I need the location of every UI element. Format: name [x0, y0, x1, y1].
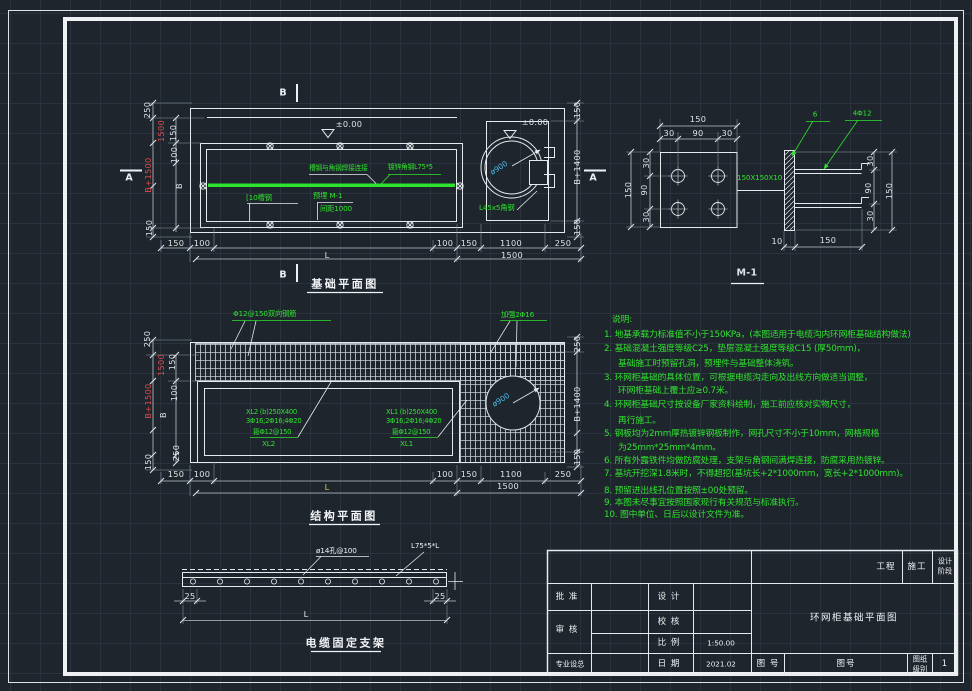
dim-250: 250: [172, 445, 180, 462]
note-line: 基础施工时预留孔洞，预埋件与基础整体浇筑。: [618, 360, 799, 369]
tb-stage-line1: 设计: [938, 557, 952, 564]
bracket-angle-label: L75*5*L: [411, 542, 439, 549]
note-line: 1. 地基承载力标准值不小于150KPa，(本图适用于电缆沟内环网柜基础结构做法…: [604, 331, 911, 340]
dim-1100: 1100: [500, 239, 522, 247]
section-mark-a-left: A: [125, 173, 132, 183]
cable-bracket-title: 电缆固定支架: [306, 638, 387, 649]
dim-100: 100: [437, 470, 454, 478]
tb-drawing-title: 环网柜基础平面图: [810, 613, 898, 623]
tb-review-label: 审 核: [556, 626, 579, 635]
dim-25: 25: [434, 592, 445, 600]
dim-100: 100: [194, 239, 211, 247]
angle-steel-label: 镀锌角钢L75*5: [388, 164, 433, 171]
anchor-bars-label: 4Φ12: [853, 109, 872, 116]
dim-b1500-red: B+1500: [144, 157, 152, 192]
tb-design-label: 设 计: [658, 593, 681, 602]
section-mark-b-top: B: [279, 88, 286, 98]
xl1-line2: 3Φ16;2Φ16;4Φ20: [386, 418, 441, 425]
note-line: 2. 基础混凝土强度等级C25，垫层混凝土强度等级C15 (厚50mm)，: [604, 345, 865, 354]
dim-b: B: [175, 183, 183, 189]
tb-stage-line2: 阶段: [938, 567, 952, 574]
xl2-line3: 箍Φ12@150: [253, 429, 291, 436]
reinforce-label: 加强2Φ16: [501, 311, 534, 318]
dim-150: 150: [573, 449, 581, 466]
dim-30: 30: [721, 129, 732, 137]
note-line: 10. 图中单位、日后以设计文件为准。: [604, 511, 749, 520]
section-mark-a-right: A: [589, 173, 596, 183]
tb-scale-label: 比 例: [658, 639, 681, 648]
dim-25: 25: [184, 592, 195, 600]
note-line: 9. 本图未尽事宜按照国家现行有关规范与标准执行。: [604, 499, 804, 508]
tb-dwgno-label: 图 号: [757, 660, 780, 669]
dim-100: 100: [437, 239, 454, 247]
dim-150: 150: [573, 219, 581, 236]
dim-1500-red: 1500: [157, 354, 165, 376]
galvanized-angle-bar: [208, 184, 455, 188]
dim-250: 250: [555, 470, 572, 478]
bracket-holes-label: ø14孔@100: [316, 547, 357, 554]
note-line: 4. 环网柜基础尺寸按设备厂家资料绘制，施工前应核对实物尺寸，: [604, 401, 855, 410]
dim-l-yellow: L: [325, 483, 330, 491]
dim-90: 90: [692, 129, 703, 137]
tb-check-label: 校 核: [658, 618, 681, 627]
dim-l: L: [325, 251, 330, 259]
dim-150: 150: [690, 115, 707, 123]
dim-1500: 1500: [501, 251, 523, 259]
tb-sheet-number: 1: [942, 660, 948, 669]
dim-150: 150: [885, 183, 893, 200]
dim-250: 250: [555, 239, 572, 247]
note-line: 为25mm*25mm*4mm。: [618, 444, 721, 453]
dim-30: 30: [866, 210, 874, 221]
tb-scale-value: 1:50.00: [707, 639, 735, 646]
dim-100: 100: [194, 470, 211, 478]
dim-150: 150: [169, 125, 177, 142]
mesh-rebar-label: Φ12@150双向钢筋: [233, 310, 296, 317]
dim-150: 150: [461, 239, 478, 247]
note-line: 5. 钢板均为2mm厚热镀锌钢板制作，网孔尺寸不小于10mm，网格规格: [604, 430, 879, 439]
dim-b1500-red: B+1500: [144, 383, 152, 418]
tb-construction-label: 施工: [907, 563, 926, 572]
note-line: 环网柜基础上覆土应≥0.7米。: [618, 387, 733, 396]
section-mark-b-bottom: B: [279, 270, 286, 280]
cable-bracket-lines: [182, 570, 463, 591]
note-line: 7. 基坑开挖深1.8米时，不得超挖(基坑长+2*1000mm，宽长+2*100…: [604, 470, 908, 479]
tb-sheetclass-line2: 级别: [913, 665, 927, 672]
level-mark: ±0.00: [336, 120, 363, 128]
notes-heading: 说明:: [612, 316, 632, 325]
xl1-line1: XL1 (b)250X400: [386, 409, 437, 416]
note-line: 再行施工。: [618, 417, 661, 426]
dim-150: 150: [168, 354, 176, 371]
tb-dwgno-value: 图号: [836, 660, 855, 669]
dim-30: 30: [642, 157, 650, 168]
xl1-name: XL1: [400, 440, 413, 447]
foundation-plan-lines: [191, 109, 565, 233]
embed-label: 预埋 M-1: [313, 192, 342, 199]
dim-1500: 1500: [497, 482, 519, 490]
weld-note-label: 槽钢与角钢焊接连接: [309, 165, 367, 172]
dim-100: 100: [170, 385, 178, 402]
cad-drawing-canvas[interactable]: B B A A ±0.00 ±0.00 槽钢与角钢焊接连接 镀锌角钢L75*5 …: [0, 0, 972, 691]
dim-b1400: B+1400: [573, 386, 581, 421]
m1-detail-title: M-1: [737, 268, 758, 278]
xl2-line2: 3Φ16;2Φ16;4Φ20: [246, 418, 301, 425]
dim-100: 100: [170, 147, 178, 164]
note-line: 8. 预留进出线孔位置按照±00处预留。: [604, 487, 753, 496]
dim-150: 150: [820, 236, 837, 244]
dim-1500-red: 1500: [157, 120, 165, 142]
dim-150: 150: [144, 454, 152, 471]
dim-250: 250: [573, 336, 581, 353]
dim-150: 150: [168, 239, 185, 247]
tb-project-label: 工程: [876, 563, 895, 572]
dim-30: 30: [663, 129, 674, 137]
dim-150: 150: [145, 220, 153, 237]
xl1-line3: 箍Φ12@150: [392, 429, 430, 436]
channel-steel-label: [10槽钢: [246, 194, 272, 201]
tb-date-label: 日 期: [658, 660, 681, 669]
dim-250: 250: [143, 331, 151, 348]
dim-30: 30: [866, 155, 874, 166]
m1-detail-lines: [661, 151, 870, 231]
embed-spacing-label: 间距1000: [320, 205, 352, 212]
dim-90: 90: [864, 182, 872, 193]
dim-30: 30: [642, 211, 650, 222]
plate-size-label: 150X150X10: [737, 174, 782, 181]
tb-discipline-label: 专业设总: [556, 660, 585, 667]
weld-size-label: 6: [813, 110, 817, 117]
level-mark: ±0.00: [522, 118, 549, 126]
structure-plan-lines: [191, 343, 565, 463]
dim-150: 150: [624, 182, 632, 199]
dim-150: 150: [461, 470, 478, 478]
structure-plan-title: 结构平面图: [310, 511, 378, 522]
dim-90: 90: [640, 184, 648, 195]
foundation-plan-title: 基础平面图: [311, 279, 379, 290]
corner-angle-label: L45x5角钢: [479, 204, 515, 211]
note-line: 3. 环网柜基础的具体位置，可根据电缆沟走向及出线方向做适当调整，: [604, 374, 873, 383]
dim-150: 150: [168, 470, 185, 478]
dim-250: 250: [143, 102, 151, 119]
dim-150: 150: [573, 102, 581, 119]
dim-10: 10: [771, 237, 782, 245]
dim-1100: 1100: [500, 470, 522, 478]
note-line: 6. 所有外露铁件均做防腐处理，支架与角钢间满焊连接，防腐采用热镀锌。: [604, 457, 890, 466]
tb-date-value: 2021.02: [706, 660, 736, 667]
xl2-name: XL2: [262, 440, 275, 447]
xl2-line1: XL2 (b)250X400: [246, 409, 297, 416]
tb-approve-label: 批 准: [556, 593, 579, 602]
dim-b1400: B+1400: [573, 149, 581, 184]
dim-l: L: [304, 610, 309, 618]
dim-b: B: [159, 412, 167, 418]
tb-sheetclass-line1: 图纸: [913, 655, 927, 662]
